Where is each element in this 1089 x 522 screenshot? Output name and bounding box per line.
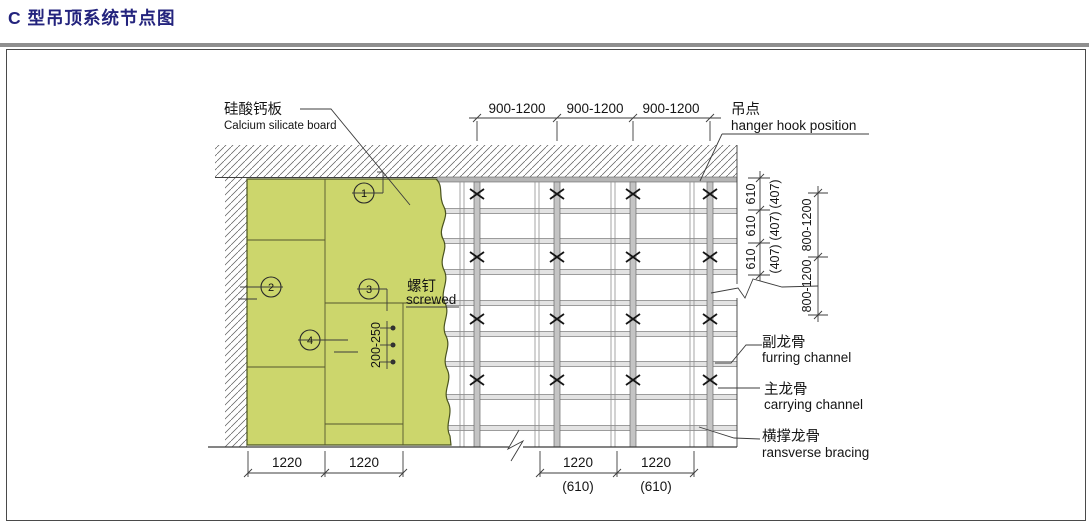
furring-channel xyxy=(438,395,737,400)
furring-channel xyxy=(438,301,737,306)
furring-channel xyxy=(438,209,737,214)
carrying-channel xyxy=(630,182,636,447)
dim-bottom-right-alt-2: (610) xyxy=(640,479,672,494)
dim-top-1: 900-1200 xyxy=(488,101,545,116)
dim-bottom-right-2: 1220 xyxy=(641,455,671,470)
carrying-label: 主龙骨 carrying channel xyxy=(718,381,863,412)
screw-label: 螺钉 screwed xyxy=(406,278,459,307)
dim-bottom-left-1: 1220 xyxy=(272,455,302,470)
screw-spacing-dim: 200-250 xyxy=(369,321,394,369)
dim-right-inner-alt-2: (407) xyxy=(768,211,782,240)
dim-bottom-right-alt-1: (610) xyxy=(562,479,594,494)
right-outer-dimension-chain: 800-1200 800-1200 xyxy=(800,186,828,322)
furring-channel xyxy=(438,239,737,244)
carrying-label-en: carrying channel xyxy=(764,397,863,412)
hanger-hook-marks xyxy=(470,189,717,385)
furring-label: 副龙骨 furring channel xyxy=(715,334,851,365)
bracing-label-en: ransverse bracing xyxy=(762,445,869,460)
break-symbol-bottom xyxy=(508,430,523,461)
dim-right-inner-alt-1: (407) xyxy=(768,179,782,208)
furring-channel xyxy=(438,426,737,431)
dim-right-outer-2: 800-1200 xyxy=(800,260,814,313)
dim-right-inner-3: 610 xyxy=(744,249,758,270)
furring-label-en: furring channel xyxy=(762,350,851,365)
furring-channels xyxy=(438,209,737,431)
wall-hatch xyxy=(225,177,247,447)
bracing-label: 横撑龙骨 ransverse bracing xyxy=(699,427,869,460)
dim-right-inner-2: 610 xyxy=(744,216,758,237)
dim-bottom-right-1: 1220 xyxy=(563,455,593,470)
board-label-zh: 硅酸钙板 xyxy=(224,100,282,118)
marker-2-number: 2 xyxy=(268,282,274,294)
furring-channel xyxy=(438,362,737,367)
furring-channel xyxy=(438,270,737,275)
dim-right-inner-1: 610 xyxy=(744,184,758,205)
top-dimension-chain: 900-1200 900-1200 900-1200 xyxy=(469,101,721,141)
suspension-grid xyxy=(438,182,737,447)
board-label-en: Calcium silicate board xyxy=(224,120,337,132)
soffit-bar xyxy=(437,177,737,182)
carrying-channels xyxy=(474,182,713,447)
carrying-label-zh: 主龙骨 xyxy=(764,381,808,398)
hanger-label-en: hanger hook position xyxy=(731,118,856,133)
detail-drawing: 1 2 3 4 200-250 硅酸钙板 Calcium silicate bo… xyxy=(0,0,1089,522)
transverse-bracing-lines xyxy=(460,182,694,447)
marker-1-number: 1 xyxy=(361,188,367,200)
dim-right-outer-1: 800-1200 xyxy=(800,199,814,252)
carrying-channel xyxy=(474,182,480,447)
drawing-frame xyxy=(7,50,1086,521)
furring-leader-line xyxy=(715,345,762,363)
carrying-channel xyxy=(707,182,713,447)
dim-top-3: 900-1200 xyxy=(642,101,699,116)
dim-bottom-left-2: 1220 xyxy=(349,455,379,470)
bottom-left-dimension-chain: 1220 1220 xyxy=(244,451,407,477)
calcium-silicate-board xyxy=(247,179,451,445)
dim-right-inner-alt-3: (407) xyxy=(768,244,782,273)
dim-screw-spacing: 200-250 xyxy=(369,322,383,368)
furring-label-zh: 副龙骨 xyxy=(762,334,806,351)
carrying-channel xyxy=(554,182,560,447)
screw-label-en: screwed xyxy=(406,292,456,307)
marker-3-number: 3 xyxy=(366,284,372,296)
furring-channel xyxy=(438,332,737,337)
bracing-label-zh: 横撑龙骨 xyxy=(762,428,820,445)
dim-top-2: 900-1200 xyxy=(566,101,623,116)
bottom-right-dimension-chain: 1220 1220 (610) (610) xyxy=(536,451,698,494)
hanger-label-zh: 吊点 xyxy=(731,101,760,118)
right-inner-dimension-chain: 610 610 610 (407) (407) (407) xyxy=(744,171,782,281)
marker-4-number: 4 xyxy=(307,335,313,347)
